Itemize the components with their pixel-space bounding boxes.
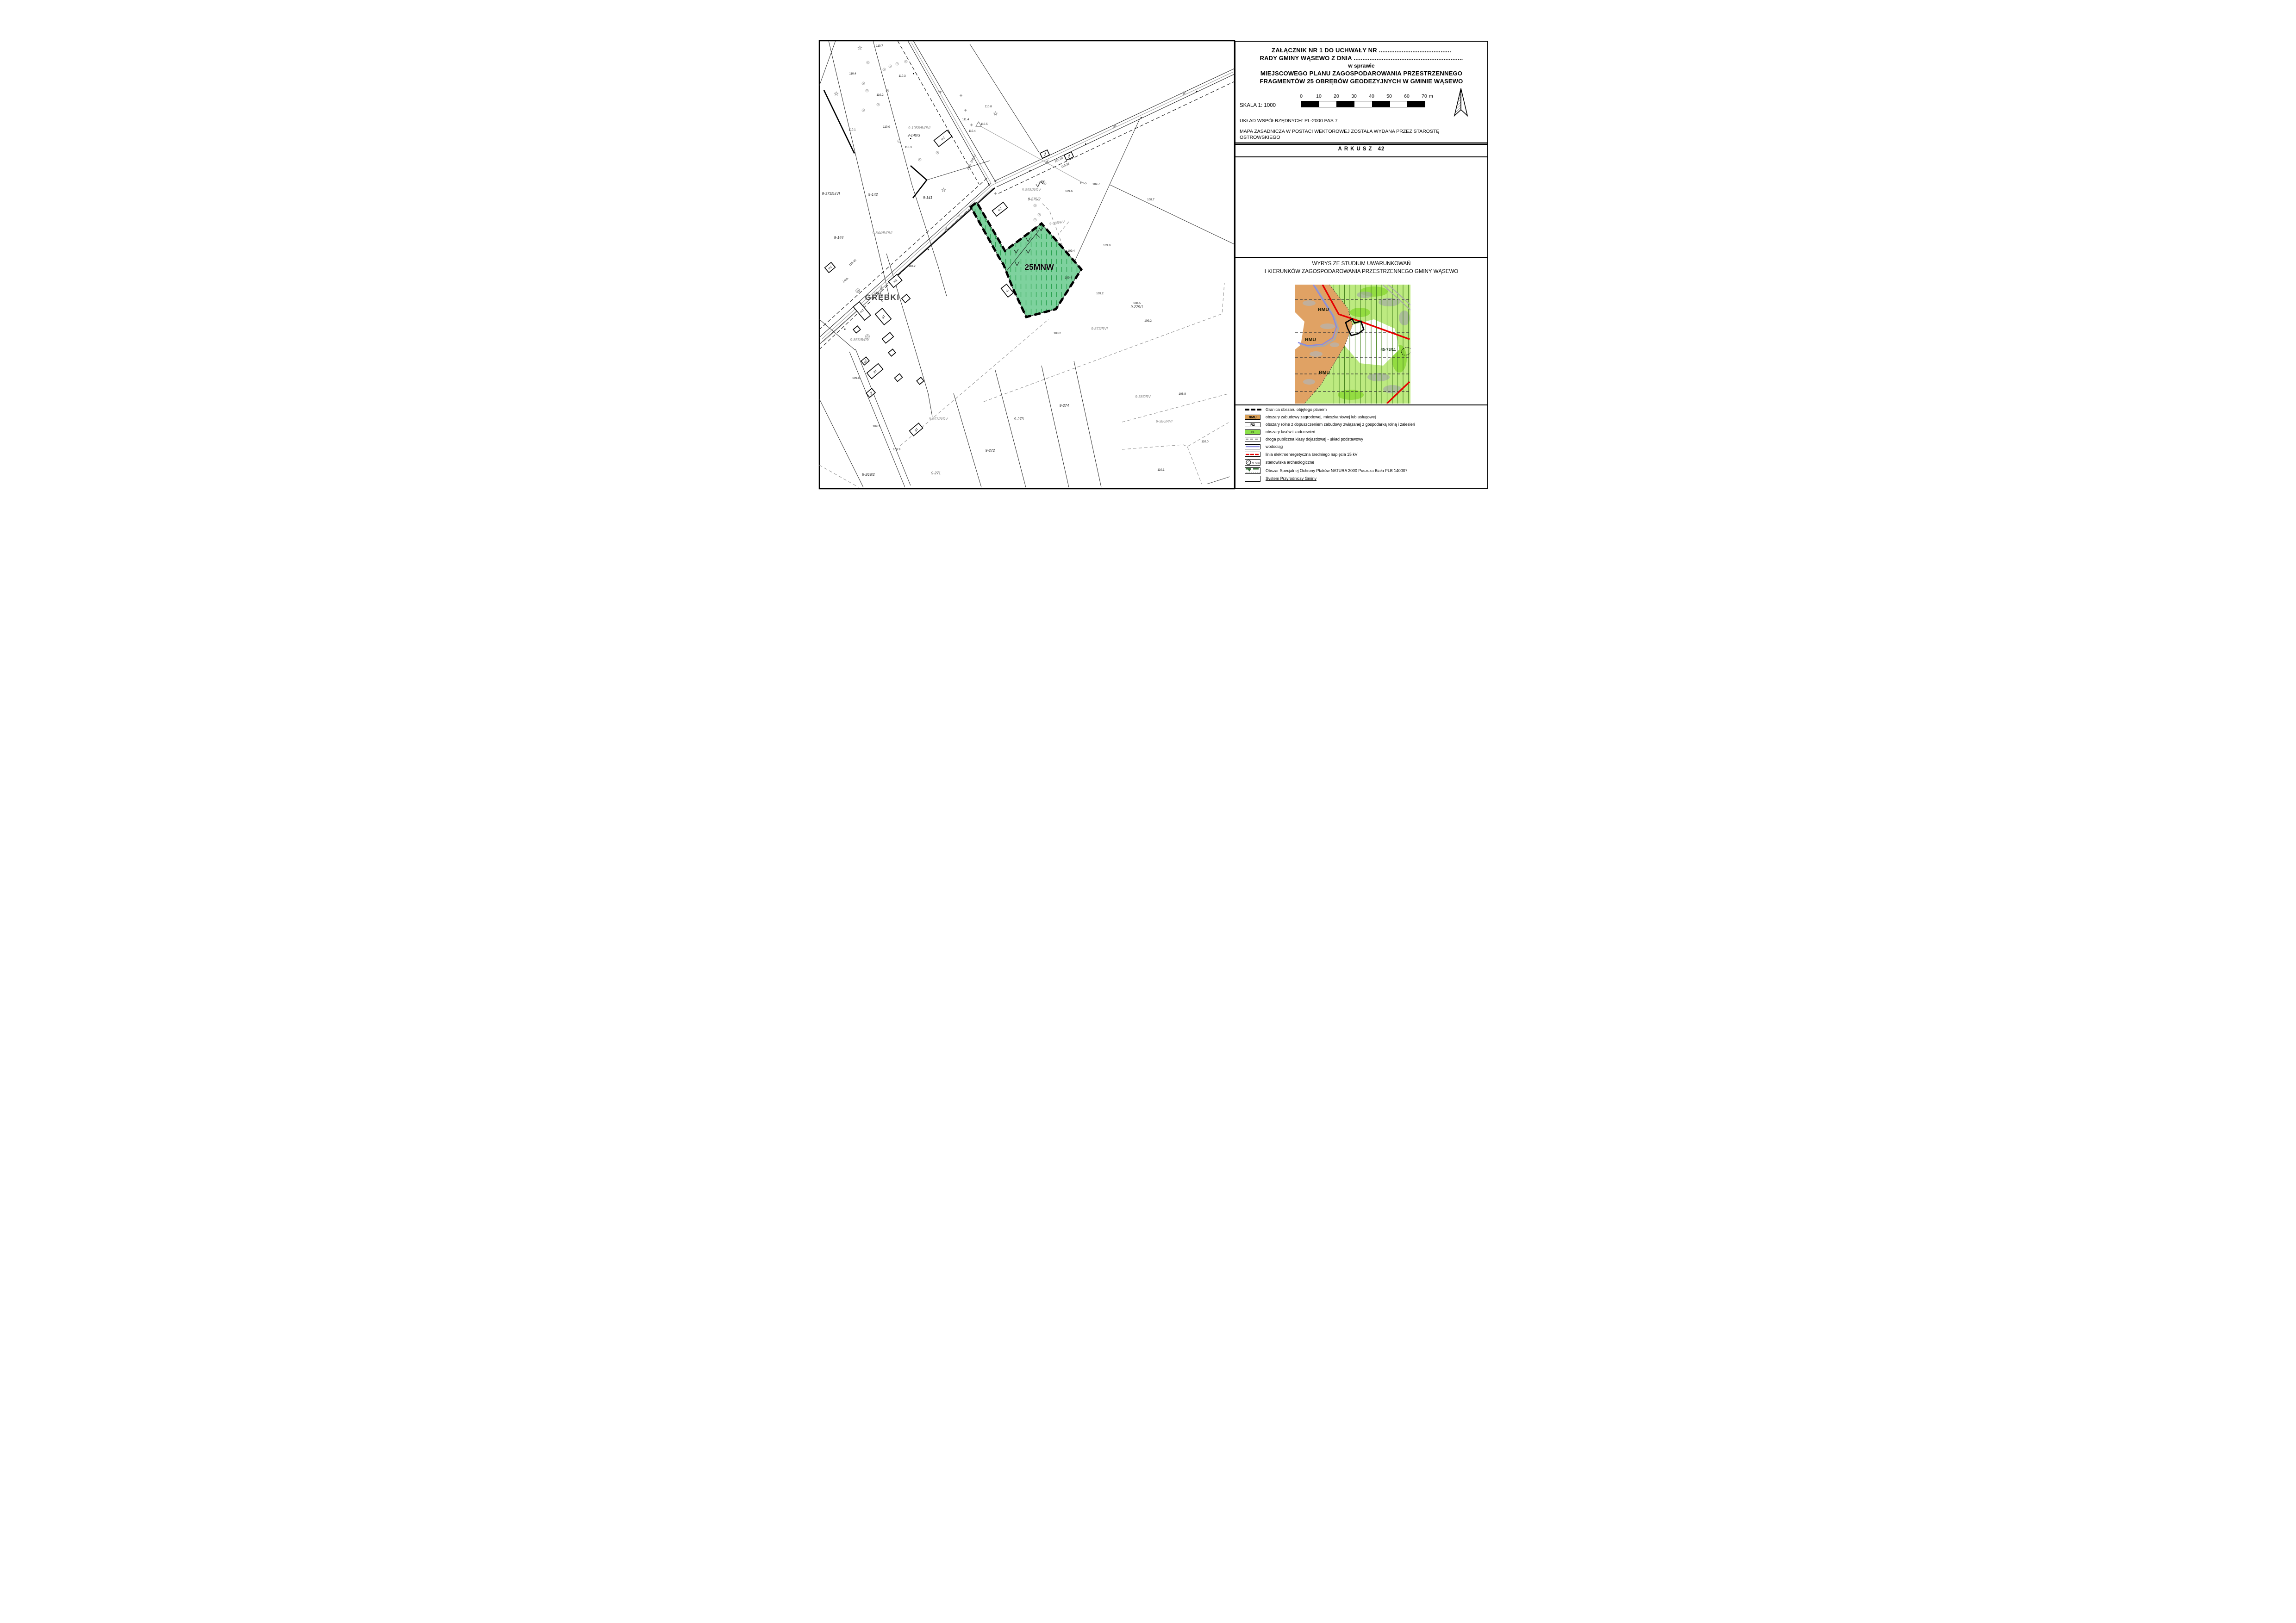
spot-height: 110.1 xyxy=(849,128,856,131)
parcel-label: 9-387/RV xyxy=(1135,395,1151,399)
power-symbol xyxy=(1245,452,1262,457)
scale-tick: 10 xyxy=(1316,93,1322,99)
water-symbol xyxy=(1245,444,1262,449)
spot-height: 108.7 xyxy=(1147,198,1154,201)
legend-label: obszary zabudowy zagrodowej, mieszkaniow… xyxy=(1266,415,1376,419)
scale-tick: 60 xyxy=(1404,93,1410,99)
crs-text: UKŁAD WSPÓŁRZĘDNYCH: PL-2000 PAS 7 xyxy=(1240,118,1338,124)
natura-symbol xyxy=(1245,467,1262,474)
north-arrow-icon xyxy=(1452,87,1470,120)
inset-site-code: 45-73/11 xyxy=(1380,347,1396,352)
scale-tick: 20 xyxy=(1334,93,1339,99)
study-inset-map: RMURMURMU45-73/11 xyxy=(1295,285,1410,404)
divider xyxy=(1235,257,1487,258)
source-text: MAPA ZASADNICZA W POSTACI WEKTOROWEJ ZOS… xyxy=(1240,129,1446,141)
boundary-symbol xyxy=(1245,408,1262,411)
spot-height: 109.7 xyxy=(1092,183,1100,186)
legend-label: Obszar Specjalnej Ochrony Ptaków NATURA … xyxy=(1266,468,1407,473)
parcel-label: 9-857/B/RV xyxy=(929,417,948,421)
parcel-label: 9-142 xyxy=(868,193,878,197)
legend-item-zl: ZLobszary lasów i zadrzewień xyxy=(1245,429,1485,435)
legend-swatch-power xyxy=(1245,452,1260,457)
legend-item-rmu: RMUobszary zabudowy zagrodowej, mieszkan… xyxy=(1245,414,1485,420)
study-title-line-2: I KIERUNKÓW ZAGOSPODAROWANIA PRZESTRZENN… xyxy=(1235,268,1487,276)
spot-height: 109.6 xyxy=(1065,190,1073,193)
legend-label: stanowiska archeologiczne xyxy=(1266,460,1314,465)
parcel-label: 9-1058/B/RVI xyxy=(908,126,931,130)
spot-height: 110.8 xyxy=(985,105,992,108)
scale-tick: 50 xyxy=(1386,93,1392,99)
legend-swatch-road xyxy=(1245,437,1260,442)
scale-unit: m xyxy=(1429,93,1433,99)
info-panel: ZAŁĄCZNIK NR 1 DO UCHWAŁY NR ...........… xyxy=(1235,41,1488,489)
arch-code: 43-72/11 xyxy=(1252,461,1260,464)
spot-height: 108.8 xyxy=(1179,392,1186,396)
divider xyxy=(1235,142,1487,143)
legend-label: obszary rolne z dopuszczeniem zabudowy z… xyxy=(1266,422,1415,427)
legend-swatch-natura xyxy=(1245,467,1260,474)
spot-height: 110.2 xyxy=(876,93,884,97)
parcel-label: 9-269/2 xyxy=(862,473,875,477)
scale-tick: 70 xyxy=(1422,93,1427,99)
spot-height: 109.4 xyxy=(1067,249,1075,253)
title-line-5: FRAGMENTÓW 25 OBRĘBÓW GEODEZYJNYCH W GMI… xyxy=(1237,78,1485,85)
spot-height: 108.5 xyxy=(1133,302,1141,305)
study-title-line-1: WYRYS ZE STUDIUM UWARUNKOWAŃ xyxy=(1235,260,1487,268)
legend-item-power: linia elektroenergetyczna średniego napi… xyxy=(1245,452,1485,457)
arch-symbol: 43-72/11 xyxy=(1245,459,1262,466)
legend-item-natura: Obszar Specjalnej Ochrony Ptaków NATURA … xyxy=(1245,467,1485,474)
spot-height: 110.4 xyxy=(849,72,856,75)
inset-rmu-label: RMU xyxy=(1319,370,1330,375)
legend-label: obszary lasów i zadrzewień xyxy=(1266,429,1315,434)
scale-tick: 40 xyxy=(1369,93,1374,99)
title-line-4: MIEJSCOWEGO PLANU ZAGOSPODAROWANIA PRZES… xyxy=(1237,70,1485,77)
legend-label: wodociąg xyxy=(1266,444,1283,449)
inset-rmu-label: RMU xyxy=(1318,307,1329,312)
spot-height: 109.1 xyxy=(873,425,880,428)
sheet-label: ARKUSZ 42 xyxy=(1235,146,1487,152)
legend-label: linia elektroenergetyczna średniego napi… xyxy=(1266,452,1358,457)
plan-sheet: GRĘBKI25MNW9-140/39-1058/B/RVI9-1429-141… xyxy=(789,0,1507,507)
legend-swatch-rmu: RMU xyxy=(1245,415,1260,420)
spot-height: 110.2 xyxy=(908,265,916,268)
legend-label: System Przyrodniczy Gminy xyxy=(1266,476,1316,481)
study-title: WYRYS ZE STUDIUM UWARUNKOWAŃ I KIERUNKÓW… xyxy=(1235,260,1487,275)
zl-symbol: ZL xyxy=(1245,429,1262,435)
road-symbol xyxy=(1245,437,1262,442)
legend-swatch-sys xyxy=(1245,476,1260,482)
place-label: GRĘBKI xyxy=(865,293,899,302)
spot-height: 110.1 xyxy=(1157,468,1165,472)
legend-item-water: wodociąg xyxy=(1245,444,1485,449)
spot-height: 110.0 xyxy=(883,125,890,129)
document-title: ZAŁĄCZNIK NR 1 DO UCHWAŁY NR ...........… xyxy=(1237,46,1485,86)
spot-height: 110.5 xyxy=(980,123,988,126)
scale-bar-segments xyxy=(1301,101,1425,107)
legend-swatch-r2: R2 xyxy=(1245,422,1260,427)
legend: Granica obszaru objętego planemRMUobszar… xyxy=(1245,407,1485,484)
spot-height: 109.8 xyxy=(852,377,860,380)
parcel-label: 9-141 xyxy=(923,196,932,200)
parcel-label: 9-386/RVI xyxy=(1156,419,1173,423)
spot-height: 110.3 xyxy=(898,75,906,78)
divider xyxy=(1235,156,1487,157)
spot-height: 108.9 xyxy=(893,448,900,451)
parcel-label: 9-274 xyxy=(1060,404,1069,408)
parcel-label: 9-275/2 xyxy=(1028,197,1041,201)
scale-tick: 30 xyxy=(1351,93,1357,99)
inset-rmu-label: RMU xyxy=(1305,337,1316,342)
parcel-label: 9-275/1 xyxy=(1130,305,1143,309)
legend-item-sys: System Przyrodniczy Gminy xyxy=(1245,476,1485,482)
legend-label: Granica obszaru objętego planem xyxy=(1266,407,1327,412)
spot-height: 110.3 xyxy=(874,292,881,295)
spot-height: 110.4 xyxy=(968,130,976,133)
title-line-3: w sprawie xyxy=(1237,62,1485,69)
legend-label: droga publiczna klasy dojazdowej - układ… xyxy=(1266,437,1363,442)
r2-symbol: R2 xyxy=(1245,422,1262,427)
legend-item-arch: 43-72/11stanowiska archeologiczne xyxy=(1245,459,1485,466)
title-line-2: RADY GMINY WĄSEWO Z DNIA ...............… xyxy=(1237,55,1485,62)
parcel-label: 9-273 xyxy=(1014,417,1024,421)
spot-height: 110.7 xyxy=(876,44,883,48)
legend-swatch-zl: ZL xyxy=(1245,429,1260,435)
scale-bar-ticks: 010203040506070m xyxy=(1301,93,1440,100)
rmu-symbol: RMU xyxy=(1245,415,1262,420)
divider xyxy=(1235,404,1487,405)
legend-item-r2: R2obszary rolne z dopuszczeniem zabudowy… xyxy=(1245,422,1485,427)
parcel-label: 9-844/B/RVI xyxy=(872,231,892,235)
title-line-1: ZAŁĄCZNIK NR 1 DO UCHWAŁY NR ...........… xyxy=(1237,47,1485,54)
parcel-label: 9-856/B/RV xyxy=(850,338,869,342)
spot-height: 109.8 xyxy=(1103,244,1111,247)
scale-tick: 0 xyxy=(1300,93,1303,99)
divider xyxy=(1235,143,1487,145)
spot-height: 110.0 xyxy=(1201,440,1209,443)
spot-height: 110.3 xyxy=(905,146,912,149)
parcel-label: 9-858/B/RV xyxy=(1022,188,1041,192)
spot-height: 108.2 xyxy=(1054,332,1061,335)
parcel-label: 9-140/3 xyxy=(907,133,920,137)
spot-height: 109.4 xyxy=(1065,276,1072,280)
parcel-label: 9-373/ŁsVI xyxy=(822,192,840,196)
zone-label: 25MNW xyxy=(1024,262,1054,272)
sys-symbol xyxy=(1245,476,1262,482)
spot-height: 110.5 xyxy=(1079,182,1087,185)
scale-bar: 010203040506070m xyxy=(1301,93,1440,107)
parcel-label: 9-271 xyxy=(931,471,941,475)
spot-height: 111.4 xyxy=(962,118,969,121)
parcel-label: 9-873/RVI xyxy=(1091,327,1108,331)
parcel-label: 9-144 xyxy=(834,236,844,240)
legend-item-boundary: Granica obszaru objętego planem xyxy=(1245,407,1485,412)
spot-height: 109.2 xyxy=(1096,292,1104,295)
parcel-label: 9-272 xyxy=(986,448,995,453)
legend-item-road: droga publiczna klasy dojazdowej - układ… xyxy=(1245,436,1485,442)
scale-text: SKALA 1: 1000 xyxy=(1240,103,1276,108)
spot-height: 109.2 xyxy=(1144,319,1152,323)
legend-swatch-arch: 43-72/11 xyxy=(1245,459,1260,466)
legend-swatch-water xyxy=(1245,444,1260,449)
